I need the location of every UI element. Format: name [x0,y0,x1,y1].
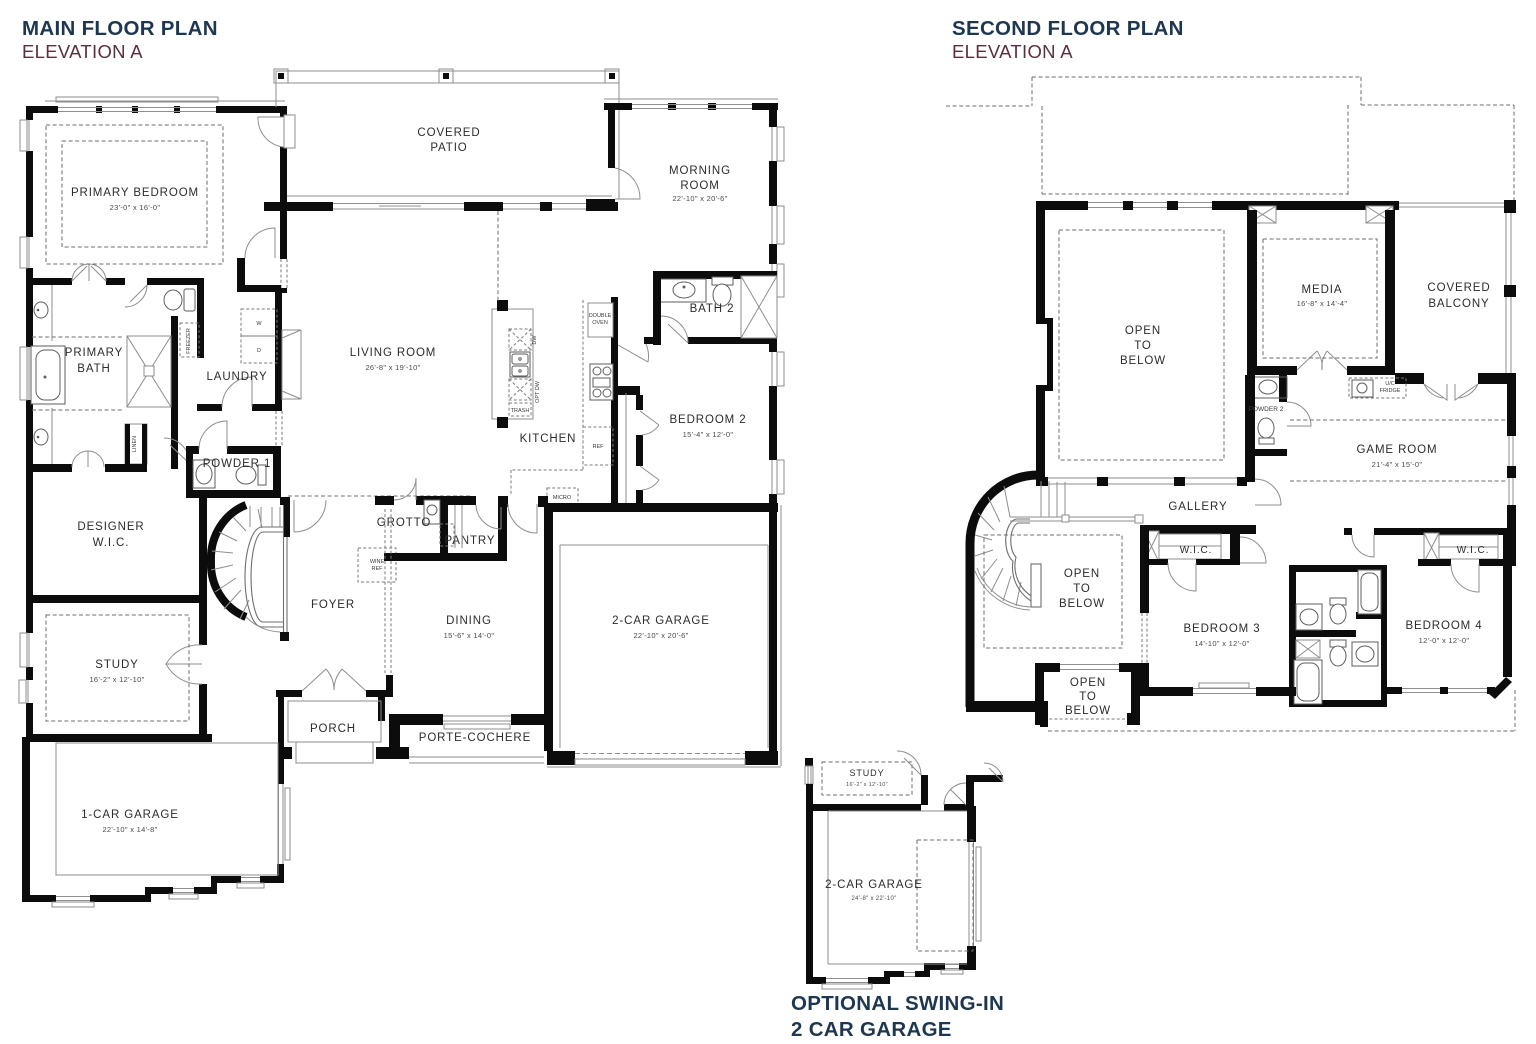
svg-text:16'-8" x 14'-4": 16'-8" x 14'-4" [1297,299,1348,308]
svg-text:PRIMARY BEDROOM: PRIMARY BEDROOM [71,187,199,199]
svg-text:MAIN FLOOR PLAN: MAIN FLOOR PLAN [22,17,218,40]
svg-text:MEDIA: MEDIA [1302,284,1343,296]
svg-text:BEDROOM 3: BEDROOM 3 [1183,623,1260,635]
svg-text:WINE: WINE [370,559,385,565]
svg-text:FOYER: FOYER [311,599,355,611]
svg-text:D: D [257,348,261,354]
svg-text:15'-4" x 12'-0": 15'-4" x 12'-0" [683,430,734,439]
svg-text:STUDY: STUDY [849,768,884,778]
svg-text:PORTE-COCHERE: PORTE-COCHERE [419,732,531,744]
svg-text:REF: REF [593,444,605,450]
svg-text:OPEN: OPEN [1125,325,1161,337]
svg-text:2 CAR GARAGE: 2 CAR GARAGE [791,1018,952,1041]
svg-text:OPTIONAL SWING-IN: OPTIONAL SWING-IN [791,992,1004,1015]
svg-text:22'-10" x 20'-6": 22'-10" x 20'-6" [672,194,727,203]
svg-text:DW: DW [532,335,538,345]
svg-text:GAME ROOM: GAME ROOM [1357,444,1438,456]
svg-text:BELOW: BELOW [1120,355,1166,367]
svg-text:W.I.C.: W.I.C. [1180,545,1213,556]
svg-text:15'-6" x 14'-0": 15'-6" x 14'-0" [444,631,495,640]
svg-text:23'-0" x 16'-0": 23'-0" x 16'-0" [110,203,161,212]
svg-text:MORNING: MORNING [669,165,731,177]
svg-text:BATH: BATH [77,363,110,375]
svg-text:14'-10" x 12'-0": 14'-10" x 12'-0" [1194,639,1249,648]
svg-text:STUDY: STUDY [95,659,138,671]
svg-text:PANTRY: PANTRY [445,535,496,547]
svg-text:TRASH: TRASH [511,408,530,414]
svg-text:OPT DW: OPT DW [535,380,541,403]
svg-text:FREEZER: FREEZER [186,328,192,354]
svg-text:ELEVATION A: ELEVATION A [22,41,143,62]
svg-text:26'-8" x 19'-10": 26'-8" x 19'-10" [365,363,420,372]
svg-text:KITCHEN: KITCHEN [520,433,577,445]
svg-text:W.I.C.: W.I.C. [93,537,130,549]
svg-text:LAUNDRY: LAUNDRY [206,371,267,383]
svg-text:16'-2" x 12'-10": 16'-2" x 12'-10" [89,675,144,684]
svg-text:24'-8" x 22'-10": 24'-8" x 22'-10" [851,896,896,902]
svg-text:PORCH: PORCH [310,723,356,735]
svg-text:2-CAR GARAGE: 2-CAR GARAGE [612,615,710,627]
svg-text:DINING: DINING [446,615,492,627]
svg-text:ELEVATION A: ELEVATION A [952,41,1073,62]
svg-text:22'-10" x 14'-8": 22'-10" x 14'-8" [102,825,157,834]
svg-text:MICRO: MICRO [553,495,572,501]
svg-text:W.I.C.: W.I.C. [1457,545,1490,556]
svg-text:ROOM: ROOM [680,180,719,192]
svg-text:OPEN: OPEN [1070,677,1106,689]
svg-text:TO: TO [1134,340,1152,352]
svg-text:TO: TO [1073,583,1091,595]
svg-text:U/C: U/C [1385,381,1395,387]
svg-text:2-CAR GARAGE: 2-CAR GARAGE [825,879,923,891]
svg-text:BALCONY: BALCONY [1428,298,1489,310]
svg-text:12'-0" x 12'-0": 12'-0" x 12'-0" [1419,636,1470,645]
svg-text:GALLERY: GALLERY [1168,501,1227,513]
svg-text:22'-10" x 20'-6": 22'-10" x 20'-6" [633,631,688,640]
svg-text:21'-4" x 15'-0": 21'-4" x 15'-0" [1372,460,1423,469]
svg-text:LINEN: LINEN [132,436,138,452]
svg-text:COVERED: COVERED [1427,282,1490,294]
svg-text:1-CAR GARAGE: 1-CAR GARAGE [81,809,179,821]
svg-text:BEDROOM 4: BEDROOM 4 [1405,620,1482,632]
svg-text:COVERED: COVERED [417,127,480,139]
svg-text:TO: TO [1079,691,1097,703]
svg-text:OVEN: OVEN [592,320,608,326]
svg-text:REF: REF [372,566,384,572]
svg-text:BELOW: BELOW [1059,598,1105,610]
svg-text:BEDROOM 2: BEDROOM 2 [669,414,746,426]
svg-text:BATH 2: BATH 2 [690,303,735,315]
svg-text:16'-2" x 12'-10": 16'-2" x 12'-10" [846,782,888,788]
svg-text:LIVING ROOM: LIVING ROOM [350,347,437,359]
svg-text:FRIDGE: FRIDGE [1380,388,1401,394]
svg-text:PRIMARY: PRIMARY [65,347,124,359]
svg-text:DOUBLE: DOUBLE [589,313,612,319]
svg-text:PATIO: PATIO [430,142,467,154]
svg-text:W: W [256,321,262,327]
svg-text:SECOND FLOOR PLAN: SECOND FLOOR PLAN [952,17,1184,40]
svg-text:POWDER 2: POWDER 2 [1249,406,1284,413]
svg-text:POWDER 1: POWDER 1 [203,458,272,470]
svg-text:BELOW: BELOW [1065,705,1111,717]
svg-text:OPEN: OPEN [1064,568,1100,580]
svg-text:DESIGNER: DESIGNER [77,521,144,533]
